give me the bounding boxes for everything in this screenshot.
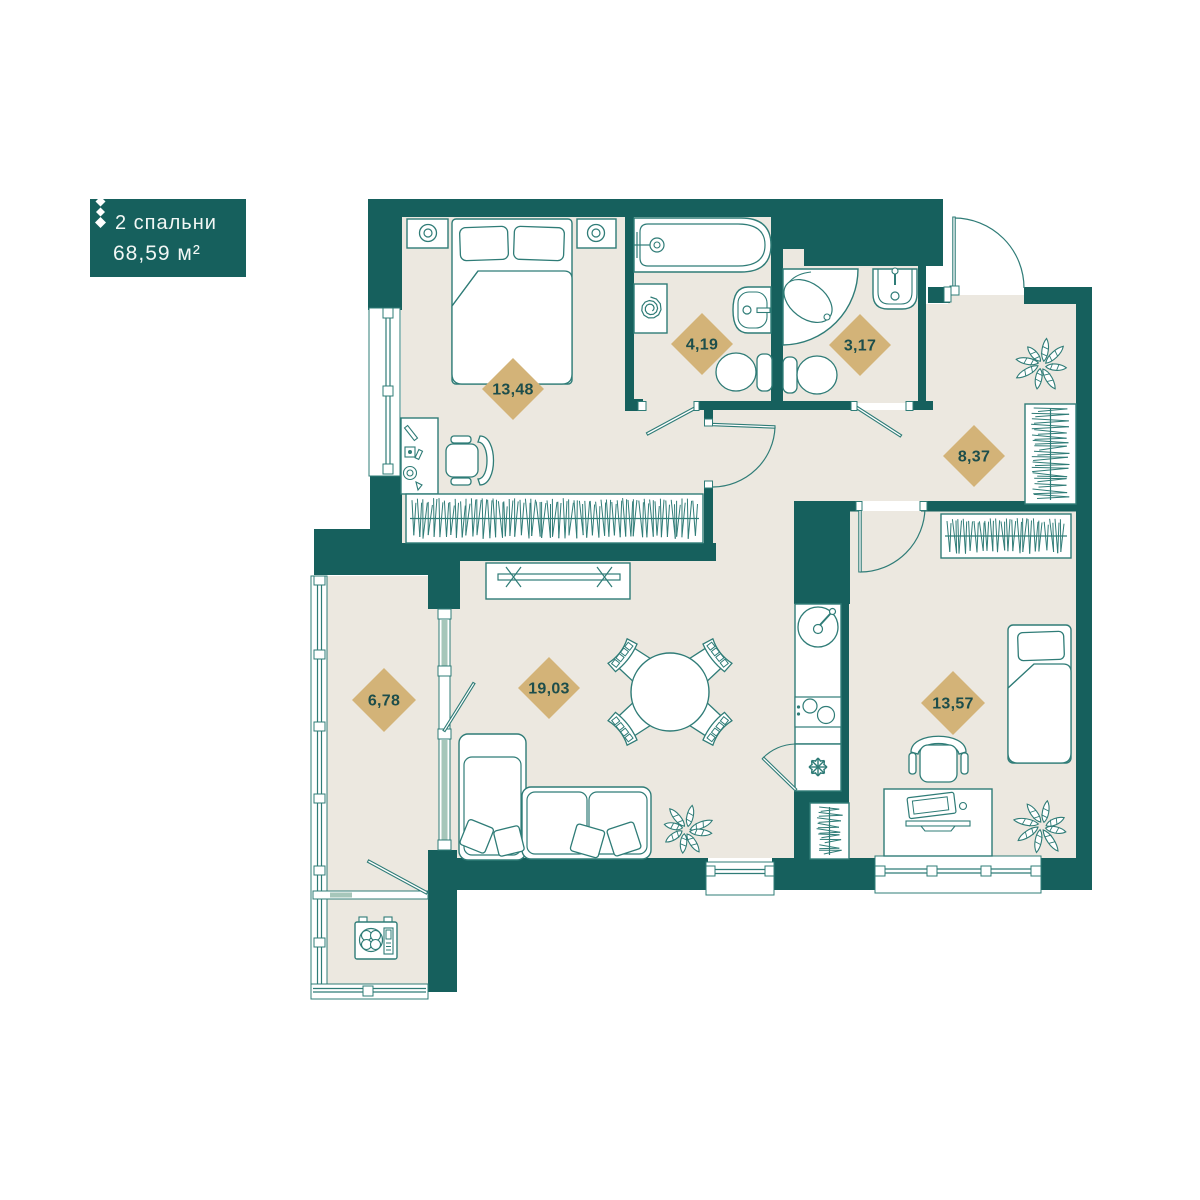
svg-text:2 спальни: 2 спальни (115, 212, 217, 234)
svg-text:4,19: 4,19 (686, 337, 718, 354)
svg-text:19,03: 19,03 (528, 681, 570, 698)
svg-text:68,59 м²: 68,59 м² (113, 242, 201, 265)
svg-text:13,48: 13,48 (492, 382, 534, 399)
svg-text:13,57: 13,57 (932, 696, 974, 713)
svg-text:3,17: 3,17 (844, 338, 876, 355)
svg-text:8,37: 8,37 (958, 449, 990, 466)
svg-text:6,78: 6,78 (368, 693, 400, 710)
